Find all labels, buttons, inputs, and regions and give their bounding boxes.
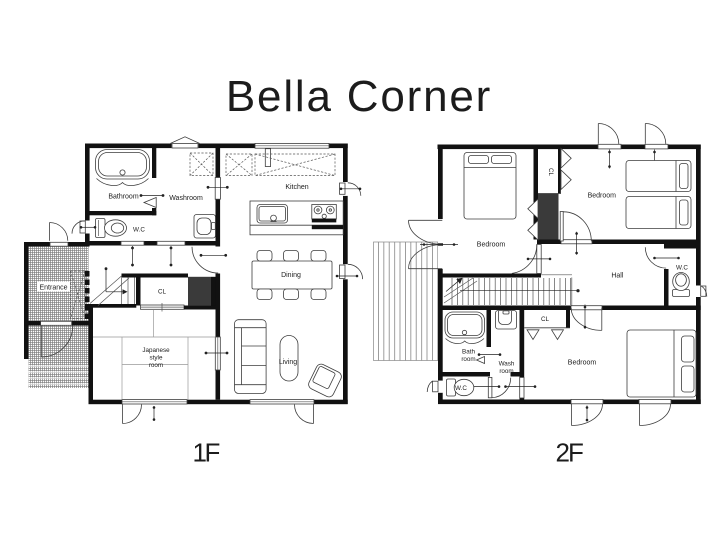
- svg-text:Bathroom: Bathroom: [108, 194, 139, 201]
- svg-text:CL: CL: [158, 289, 167, 296]
- svg-text:room: room: [499, 368, 513, 375]
- svg-text:Dining: Dining: [281, 272, 301, 279]
- svg-text:Bella Corner: Bella Corner: [226, 72, 492, 121]
- svg-text:Bedroom: Bedroom: [477, 242, 506, 249]
- svg-text:W.C: W.C: [133, 227, 145, 234]
- svg-text:room: room: [149, 362, 163, 369]
- svg-text:W.C: W.C: [455, 385, 467, 392]
- svg-text:Bedroom: Bedroom: [568, 360, 597, 367]
- svg-text:Kitchen: Kitchen: [285, 184, 308, 191]
- svg-text:Entrance: Entrance: [39, 285, 67, 292]
- svg-text:Bath: Bath: [462, 349, 475, 356]
- svg-text:CL: CL: [547, 168, 554, 177]
- svg-text:Wash: Wash: [499, 361, 515, 368]
- svg-text:W.C: W.C: [676, 265, 688, 272]
- svg-text:Washroom: Washroom: [169, 195, 203, 202]
- svg-text:Bedroom: Bedroom: [588, 193, 617, 200]
- svg-text:Living: Living: [279, 359, 297, 366]
- svg-text:F: F: [568, 438, 584, 468]
- svg-text:Hall: Hall: [611, 273, 624, 280]
- svg-text:room: room: [461, 356, 475, 363]
- svg-text:style: style: [150, 355, 163, 362]
- svg-text:CL: CL: [541, 316, 550, 323]
- svg-text:F: F: [205, 438, 221, 468]
- svg-text:Japanese: Japanese: [142, 347, 170, 354]
